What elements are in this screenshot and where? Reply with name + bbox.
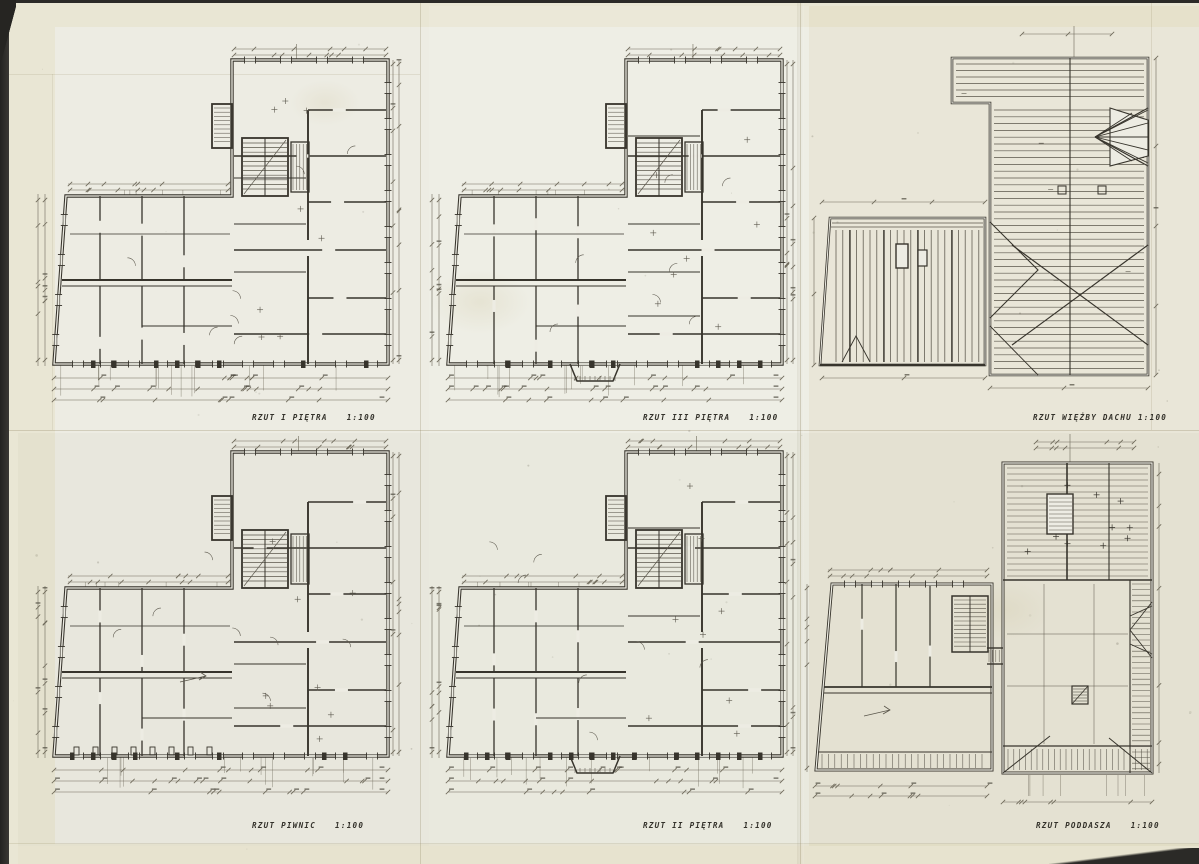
scanner-edge-left bbox=[0, 0, 9, 864]
caption-cellar: RZUT PIWNIC1:100 bbox=[252, 821, 364, 830]
caption-first-floor: RZUT I PIĘTRA1:100 bbox=[252, 413, 376, 422]
caption-roof-truss: RZUT WIĘŻBY DACHU1:100 bbox=[1033, 413, 1167, 422]
paper-bottom-margin bbox=[18, 846, 1199, 864]
drawing-second-floor-plan bbox=[424, 436, 796, 800]
drawing-cellar-plan bbox=[30, 436, 402, 800]
drawing-attic-plan bbox=[804, 434, 1160, 820]
caption-scale: 1:100 bbox=[347, 413, 376, 422]
caption-title: RZUT PIWNIC bbox=[252, 821, 316, 830]
caption-scale: 1:100 bbox=[744, 821, 773, 830]
drawing-third-floor-plan bbox=[424, 44, 796, 408]
caption-title: RZUT WIĘŻBY DACHU bbox=[1033, 413, 1132, 422]
caption-second-floor: RZUT II PIĘTRA1:100 bbox=[643, 821, 773, 830]
caption-scale: 1:100 bbox=[1131, 821, 1160, 830]
caption-scale: 1:100 bbox=[749, 413, 778, 422]
caption-title: RZUT III PIĘTRA bbox=[643, 413, 730, 422]
drawing-roof-truss-plan bbox=[812, 26, 1162, 398]
caption-third-floor: RZUT III PIĘTRA1:100 bbox=[643, 413, 778, 422]
caption-title: RZUT II PIĘTRA bbox=[643, 821, 725, 830]
caption-attic: RZUT PODDASZA1:100 bbox=[1036, 821, 1160, 830]
scanned-architectural-sheet: { "sheet": { "panels": [ { "id": "first-… bbox=[0, 0, 1199, 864]
drawing-first-floor-plan bbox=[30, 44, 402, 408]
caption-scale: 1:100 bbox=[335, 821, 364, 830]
caption-scale: 1:100 bbox=[1138, 413, 1167, 422]
caption-title: RZUT PODDASZA bbox=[1036, 821, 1112, 830]
caption-title: RZUT I PIĘTRA bbox=[252, 413, 328, 422]
